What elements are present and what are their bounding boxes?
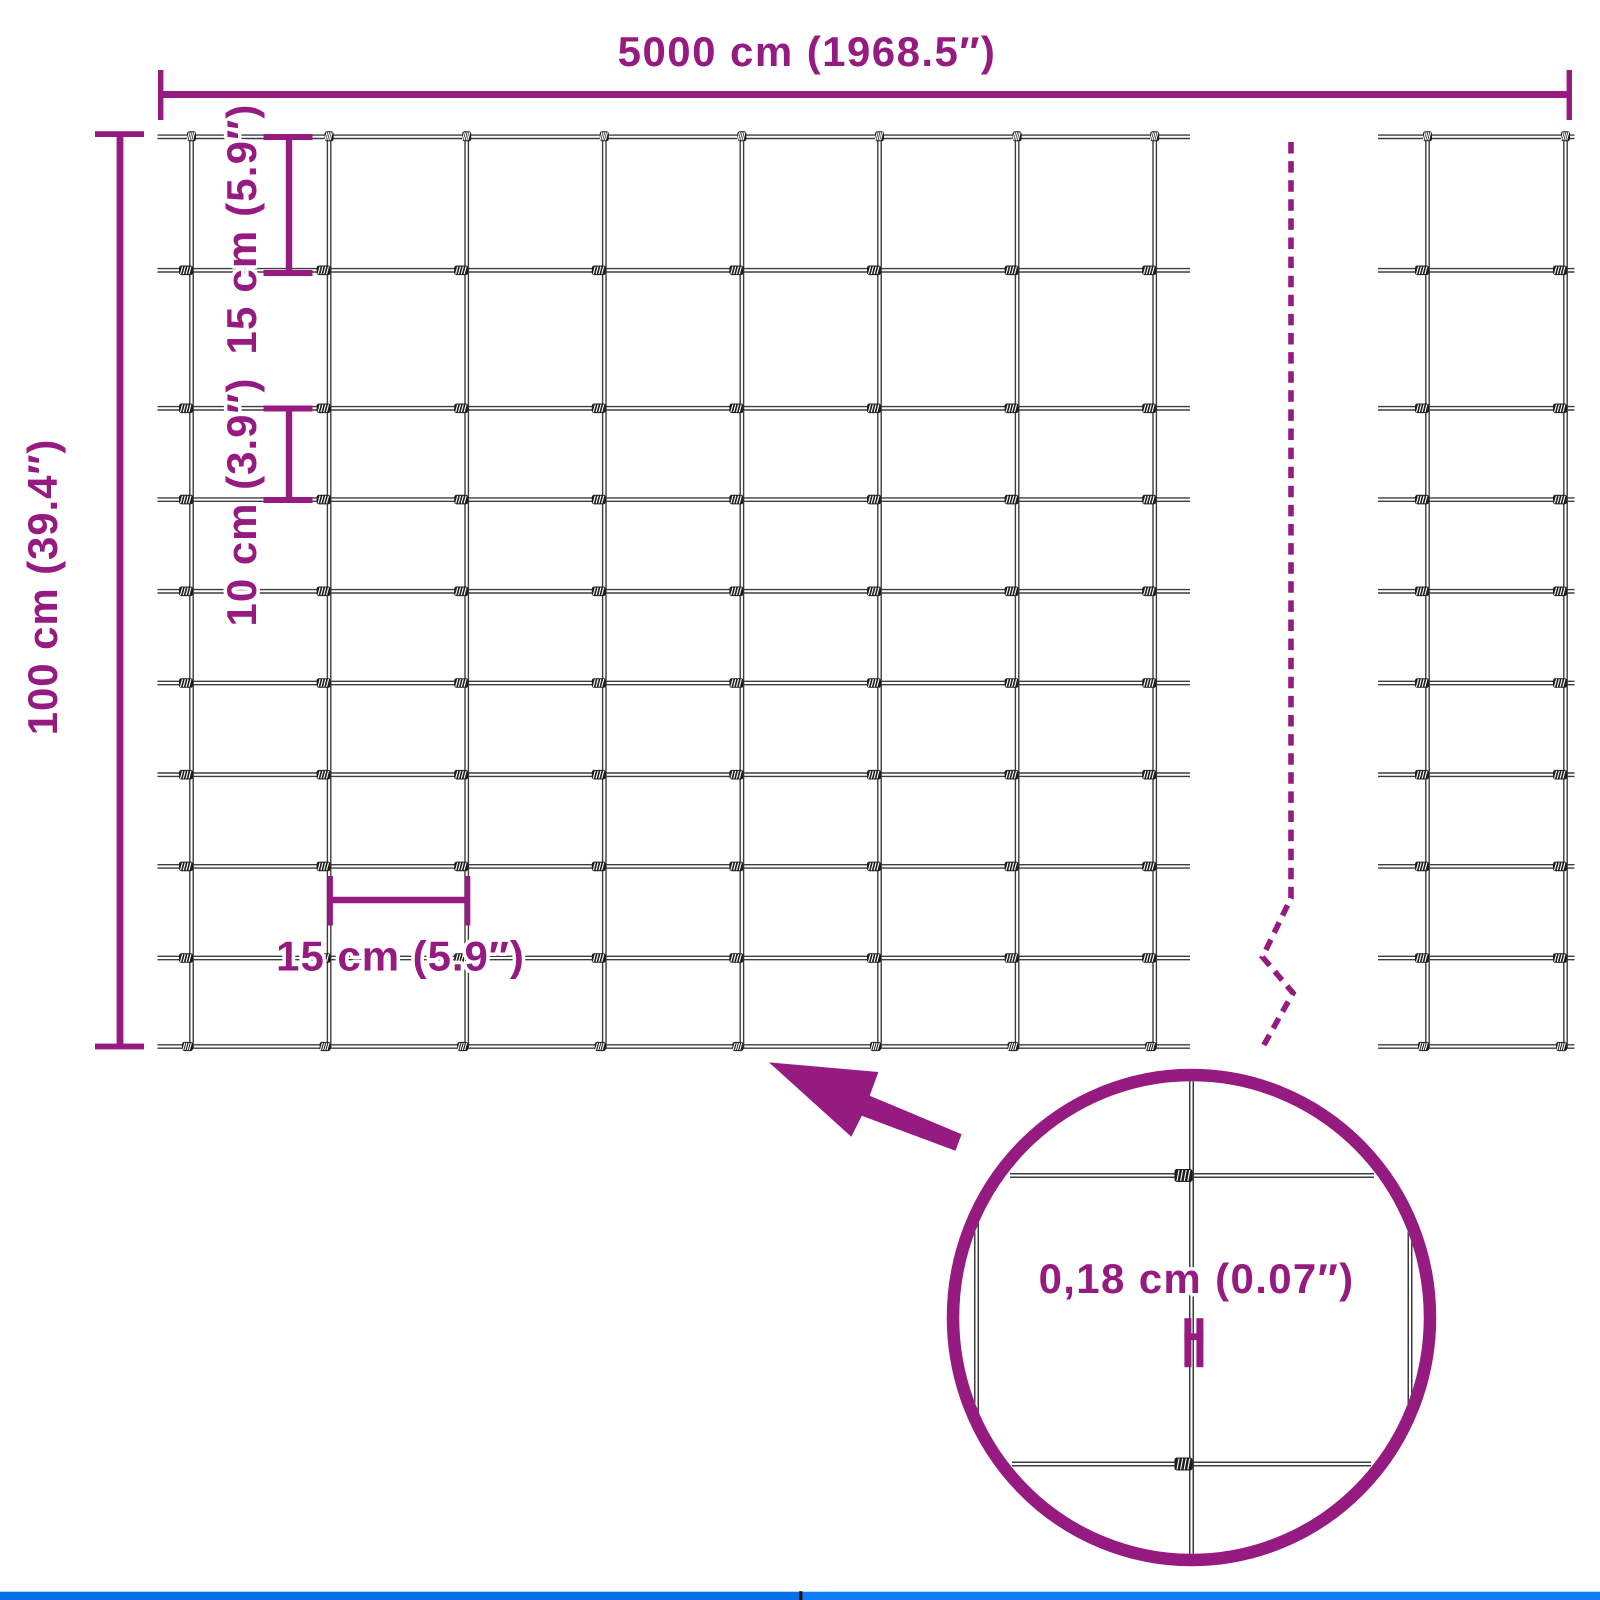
svg-text:100 cm (39.4″): 100 cm (39.4″)	[19, 439, 66, 736]
svg-text:10 cm (3.9″): 10 cm (3.9″)	[218, 378, 265, 627]
svg-text:15 cm (5.9″): 15 cm (5.9″)	[218, 103, 265, 354]
svg-text:5000 cm (1968.5″): 5000 cm (1968.5″)	[618, 28, 997, 75]
svg-text:15 cm (5.9″): 15 cm (5.9″)	[276, 933, 525, 980]
svg-text:0,18 cm (0.07″): 0,18 cm (0.07″)	[1039, 1255, 1355, 1302]
